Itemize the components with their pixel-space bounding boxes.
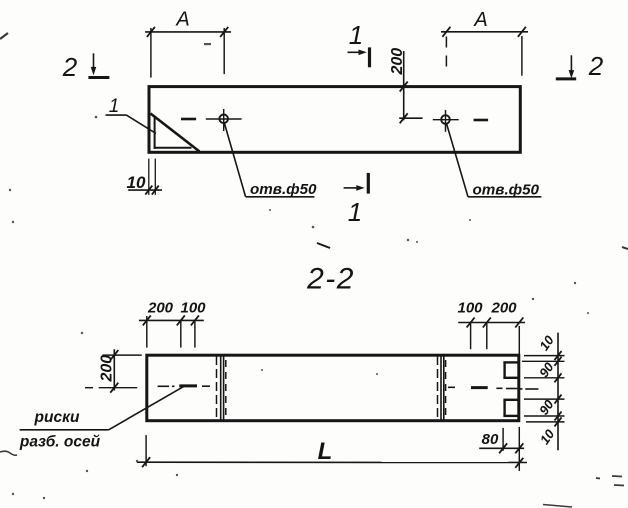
svg-text:отв.ф50: отв.ф50 [473, 182, 540, 199]
svg-text:200: 200 [389, 48, 406, 76]
svg-text:10: 10 [127, 173, 146, 192]
svg-text:A: A [473, 9, 487, 31]
svg-text:разб. осей: разб. осей [19, 434, 101, 451]
svg-text:1: 1 [349, 20, 363, 50]
svg-text:200: 200 [99, 355, 116, 383]
svg-text:200: 200 [490, 300, 517, 317]
svg-text:10: 10 [537, 426, 558, 447]
svg-text:10: 10 [536, 332, 557, 353]
svg-text:200: 200 [147, 300, 174, 317]
svg-text:1: 1 [348, 197, 362, 227]
svg-text:A: A [175, 9, 189, 31]
svg-text:80: 80 [482, 431, 499, 448]
svg-text:1: 1 [109, 96, 120, 117]
svg-text:отв.ф50: отв.ф50 [250, 181, 317, 198]
svg-text:риски: риски [34, 409, 80, 426]
svg-text:90: 90 [536, 359, 557, 380]
svg-text:100: 100 [457, 300, 483, 317]
svg-text:2: 2 [588, 51, 604, 81]
svg-text:100: 100 [180, 300, 206, 317]
svg-text:2-2: 2-2 [306, 263, 355, 296]
svg-text:2: 2 [62, 52, 78, 82]
svg-text:L: L [318, 438, 333, 465]
